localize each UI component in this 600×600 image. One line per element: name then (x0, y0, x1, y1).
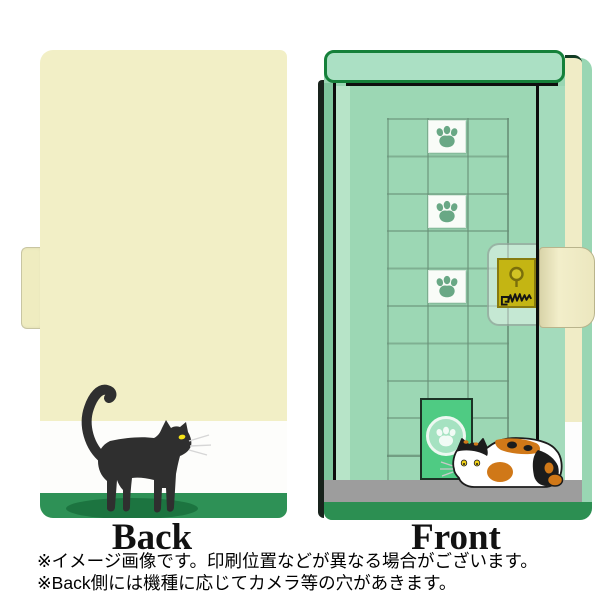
paw-tile (428, 195, 466, 228)
paw-tile (428, 120, 466, 153)
footnote-line-2: ※Back側には機種に応じてカメラ等の穴があきます。 (37, 573, 538, 595)
black-cat-whiskers (189, 435, 211, 455)
paw-print-icon (434, 200, 460, 223)
calico-tail (548, 474, 563, 486)
footnote-line-1: ※イメージ画像です。印刷位置などが異なる場合がございます。 (37, 551, 538, 573)
paw-print-icon (434, 275, 460, 298)
black-cat-illustration (76, 381, 211, 517)
front-case-view (318, 50, 595, 522)
back-case-view (40, 50, 287, 518)
front-face-highlight (336, 86, 350, 480)
black-cat-body (98, 420, 191, 512)
top-edge-bar (324, 50, 565, 83)
top-right-foredge (565, 55, 582, 88)
footnotes: ※イメージ画像です。印刷位置などが異なる場合がございます。 ※Back側には機種… (37, 551, 538, 594)
paw-tile (428, 270, 466, 303)
scratch-mark-icon (500, 287, 534, 307)
spine-strip (324, 83, 333, 480)
product-image: Back Front ※イメージ画像です。印刷位置などが異なる場合がございます。… (0, 0, 600, 600)
foredge-white (565, 422, 582, 480)
door-lock-plate (497, 258, 536, 308)
strap-end (539, 247, 595, 328)
calico-cat-illustration (439, 436, 566, 490)
calico-cat-whiskers (440, 462, 453, 476)
calico-belly-patch (487, 462, 513, 482)
keyhole-icon (499, 262, 534, 290)
paw-print-icon (434, 125, 460, 148)
